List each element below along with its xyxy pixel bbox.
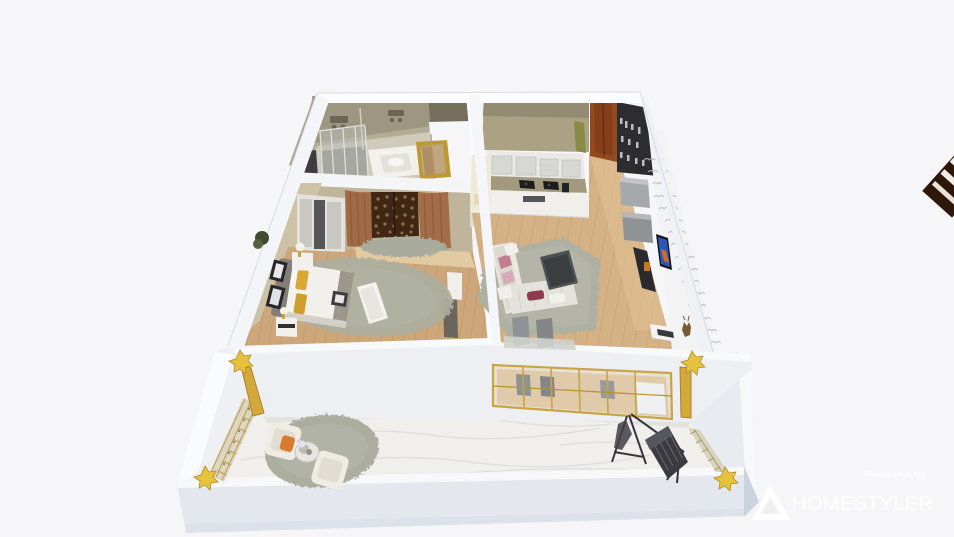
- svg-text:HOMESTYLER: HOMESTYLER: [792, 493, 933, 515]
- svg-text:Powered by: Powered by: [864, 469, 927, 479]
